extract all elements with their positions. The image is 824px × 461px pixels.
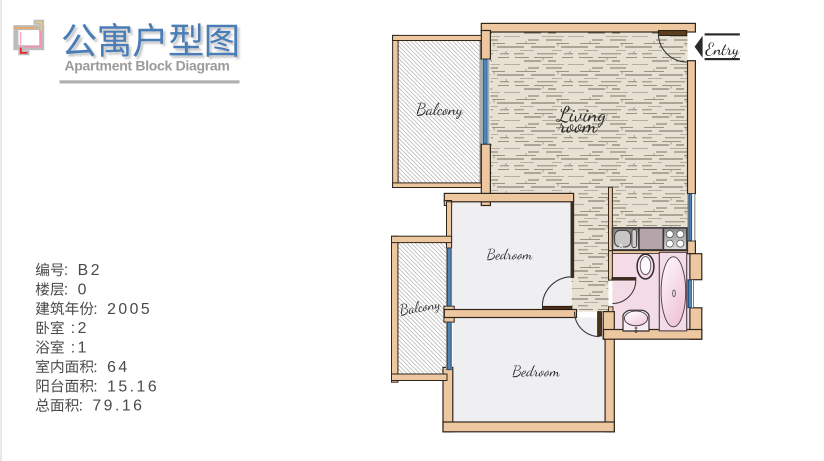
svg-text::1: :1 xyxy=(64,340,89,357)
svg-text:: B2: : B2 xyxy=(64,262,102,279)
svg-text:: 64: : 64 xyxy=(93,359,129,376)
svg-text:: 15.16: : 15.16 xyxy=(93,378,159,395)
svg-text:Apartment Block Diagram: Apartment Block Diagram xyxy=(65,57,230,73)
svg-text:: 2005: : 2005 xyxy=(93,301,152,318)
svg-text:: 79.16: : 79.16 xyxy=(79,398,145,415)
svg-text::2: :2 xyxy=(64,320,89,337)
svg-text:: 0: : 0 xyxy=(64,282,89,299)
